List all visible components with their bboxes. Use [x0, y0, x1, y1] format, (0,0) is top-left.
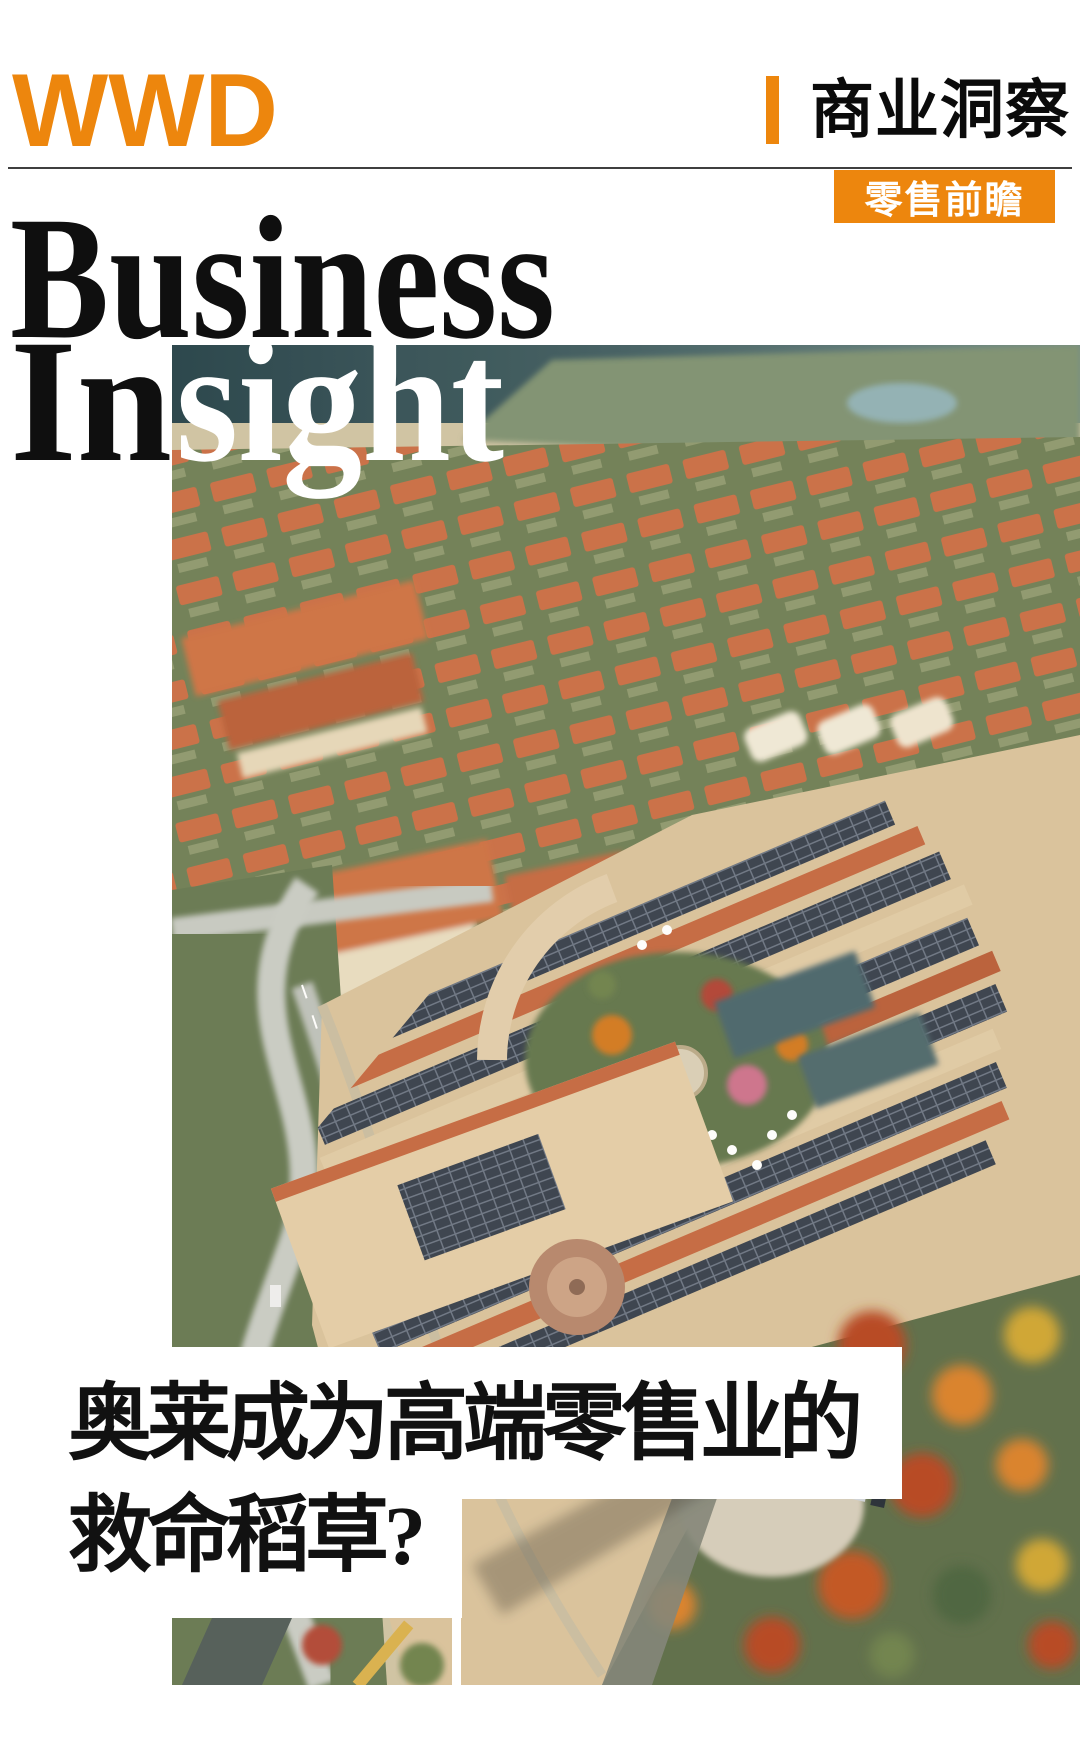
section-accent-bar	[766, 76, 779, 144]
cover-headline: 奥莱成为高端零售业的 救命稻草?	[68, 1369, 858, 1593]
retail-outlook-tag: 零售前瞻	[834, 170, 1055, 223]
cover-headline-line1: 奥莱成为高端零售业的	[68, 1369, 858, 1481]
magazine-cover-page: WWD CHINA 商业洞察 零售前瞻	[0, 0, 1080, 1750]
wwd-logo: WWD CHINA	[8, 64, 288, 154]
retail-outlook-tag-label: 零售前瞻	[864, 169, 1024, 224]
cover-headline-line2: 救命稻草?	[68, 1481, 858, 1593]
section-title: 商业洞察	[780, 72, 1070, 148]
masthead-line2-black: In	[10, 304, 172, 499]
wwd-logo-region-label: CHINA	[215, 190, 257, 202]
wwd-logo-text: WWD	[12, 64, 278, 154]
photo-seam	[452, 1610, 461, 1688]
wwd-logo-art: WWD	[8, 64, 288, 154]
